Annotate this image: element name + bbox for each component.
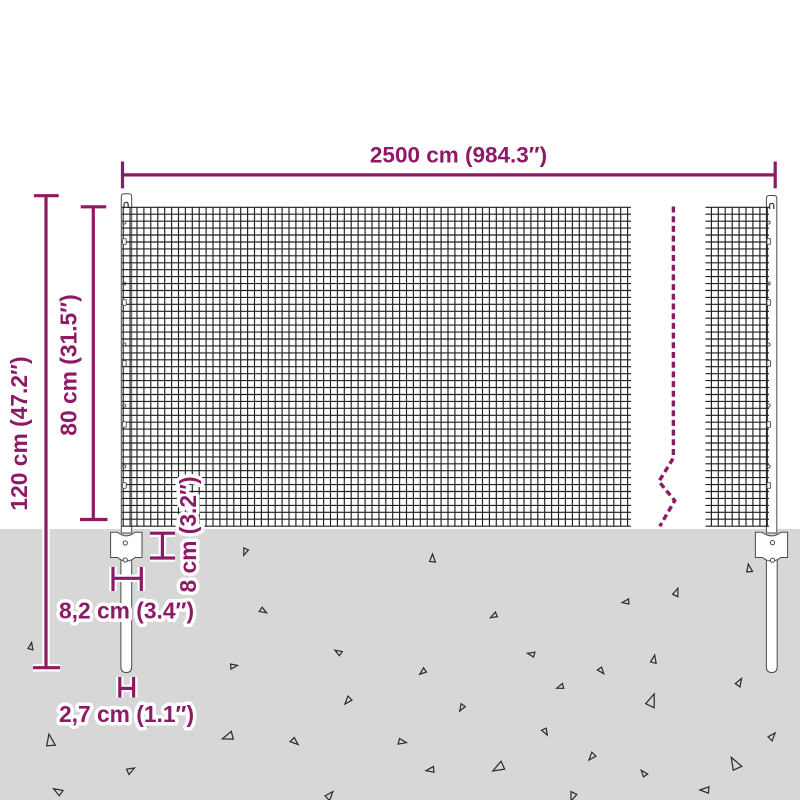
svg-text:120 cm (47.2″): 120 cm (47.2″) (6, 356, 32, 510)
svg-text:8,2 cm (3.4″): 8,2 cm (3.4″) (59, 598, 194, 624)
svg-text:2,7 cm (1.1″): 2,7 cm (1.1″) (59, 701, 194, 727)
svg-text:80 cm (31.5″): 80 cm (31.5″) (56, 294, 82, 435)
svg-text:2500 cm (984.3″): 2500 cm (984.3″) (370, 143, 547, 168)
svg-text:8 cm (3.2″): 8 cm (3.2″) (175, 476, 201, 592)
